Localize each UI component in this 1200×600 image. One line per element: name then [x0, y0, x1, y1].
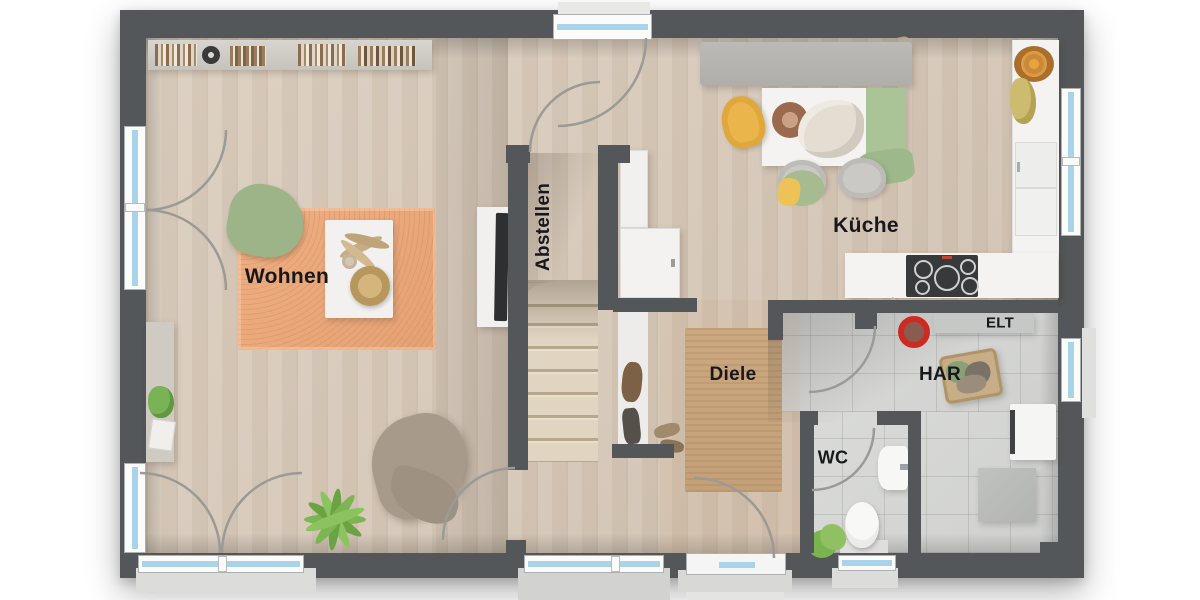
- wall-wc-top-left: [800, 411, 818, 425]
- wall-har-door-pillar: [855, 313, 877, 329]
- wardrobe-handle: [671, 259, 675, 267]
- room-label-kueche: Küche: [833, 214, 899, 238]
- room-label-abstellen: Abstellen: [533, 183, 555, 271]
- wall-niche-top: [613, 298, 697, 312]
- window-bottom-left-french-door: [138, 555, 304, 573]
- window-har-right: [1061, 338, 1081, 402]
- red-bucket: [897, 312, 931, 350]
- wall-diele-har-stub: [768, 300, 783, 340]
- books-row-2: [230, 46, 266, 66]
- dining-chair-grey-2: [838, 158, 886, 198]
- hanging-plant: [1010, 78, 1036, 124]
- wall-kitchen-har: [768, 300, 1058, 313]
- room-label-elt: ELT: [986, 315, 1014, 332]
- books-row-3: [298, 44, 346, 66]
- entrance-door: [686, 553, 786, 575]
- floor-plan-render: Wohnen Abstellen Küche Diele WC HAR ELT: [0, 0, 1200, 600]
- kitchen-bench: [700, 42, 912, 86]
- room-label-wc: WC: [818, 448, 849, 469]
- built-in-appliance-1: [1015, 142, 1057, 188]
- wall-abstellen-right: [598, 145, 618, 310]
- cooktop: [906, 255, 978, 297]
- wall-hall-door-pillar: [506, 540, 526, 554]
- wall-wc-left: [800, 425, 814, 553]
- room-label-diele: Diele: [710, 364, 757, 386]
- wardrobe: [620, 228, 680, 298]
- wc-window-slab: [832, 568, 898, 588]
- window-bottom-middle: [524, 555, 664, 573]
- right-wall-ledge: [1082, 328, 1096, 418]
- wall-niche-bottom: [612, 444, 674, 458]
- cooktop-control: [942, 256, 952, 259]
- sideboard-plant: [148, 386, 174, 418]
- window-wc: [838, 555, 896, 571]
- palm-plant: [300, 488, 370, 552]
- books-row-4: [358, 46, 416, 66]
- wall-har-corner-stub: [1040, 542, 1058, 553]
- window-kitchen-right: [1061, 88, 1081, 236]
- sideboard-card: [148, 418, 176, 451]
- dryer-box: [978, 468, 1036, 522]
- window-left-lower: [124, 463, 146, 553]
- tv-screen: [494, 213, 509, 321]
- entrance-door-glazing: [719, 562, 755, 568]
- vase: [342, 254, 357, 269]
- room-label-wohnen: Wohnen: [245, 265, 329, 289]
- hallway-rug: [685, 328, 782, 492]
- built-in-appliance-2: [1015, 188, 1057, 236]
- wc-sink: [878, 446, 908, 490]
- elt-panel: [934, 313, 1034, 333]
- terrace-slab-top: [558, 2, 650, 14]
- vinyl-record-icon: [202, 46, 220, 64]
- entrance-step-2: [686, 592, 784, 600]
- appliance-handle: [1017, 162, 1020, 172]
- toilet: [845, 502, 879, 548]
- room-label-har: HAR: [919, 364, 961, 386]
- washing-machine: [1010, 404, 1056, 460]
- fruit-bowl-counter: [1014, 46, 1054, 82]
- books-row-1: [155, 44, 197, 66]
- house-outline: Wohnen Abstellen Küche Diele WC HAR ELT: [120, 10, 1084, 578]
- gold-tray: [350, 266, 390, 306]
- terrace-door-top: [553, 14, 652, 40]
- wall-wc-right: [908, 411, 921, 553]
- staircase: [528, 280, 598, 462]
- window-left-french-door: [124, 126, 146, 290]
- wall-abstellen-left: [508, 145, 528, 470]
